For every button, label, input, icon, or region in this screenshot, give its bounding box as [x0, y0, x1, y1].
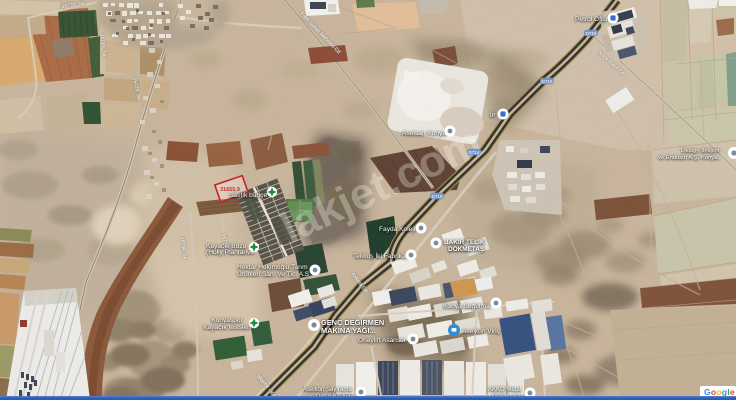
svg-text:BAKIR TELİK: BAKIR TELİK: [444, 237, 485, 246]
svg-text:AKKO Metal: AKKO Metal: [488, 387, 521, 393]
svg-text:İP: İP: [490, 112, 496, 119]
svg-text:Satılık bahçe: Satılık bahçe: [229, 192, 267, 199]
svg-text:Aselkon Vinç: Aselkon Vinç: [462, 328, 501, 335]
svg-text:DÖKMETAŞ: DÖKMETAŞ: [448, 244, 485, 253]
svg-text:Kayacık tesisleri: Kayacık tesisleri: [203, 324, 251, 331]
svg-text:D715: D715: [586, 31, 597, 36]
svg-text:Aselsan Konya: Aselsan Konya: [402, 130, 446, 137]
svg-text:Konyaspor: Konyaspor: [211, 317, 243, 324]
svg-text:Aselkon Sayırama: Aselkon Sayırama: [303, 387, 352, 393]
svg-text:Fayda Koleji: Fayda Koleji: [379, 226, 416, 233]
svg-text:Petrol Ofisi: Petrol Ofisi: [575, 16, 608, 23]
svg-text:Liktaş-ı İletişim: Liktaş-ı İletişim: [681, 147, 720, 154]
svg-text:MAKİNA YAĞI...: MAKİNA YAĞI...: [321, 326, 376, 335]
svg-text:D714: D714: [469, 150, 480, 155]
svg-text:Google: Google: [704, 387, 735, 397]
svg-text:Konya Soğutma: Konya Soğutma: [443, 303, 490, 310]
svg-text:Ürünleri San. Ve Tic. A.Ş: Ürünleri San. Ve Tic. A.Ş: [237, 270, 310, 278]
svg-text:D715: D715: [432, 194, 443, 199]
svg-text:Hektar Hekimoğlu Tarım: Hektar Hekimoğlu Tarım: [237, 264, 308, 271]
svg-text:Onaylift Asansör: Onaylift Asansör: [358, 337, 407, 344]
svg-text:(Holly Plantarive: (Holly Plantarive: [206, 249, 254, 256]
svg-text:D715: D715: [542, 79, 553, 84]
svg-text:ve Endüstri A.Ş. Konya..: ve Endüstri A.Ş. Konya..: [658, 155, 721, 161]
svg-text:Tekkuş İki Fabrikası: Tekkuş İki Fabrikası: [353, 251, 411, 260]
